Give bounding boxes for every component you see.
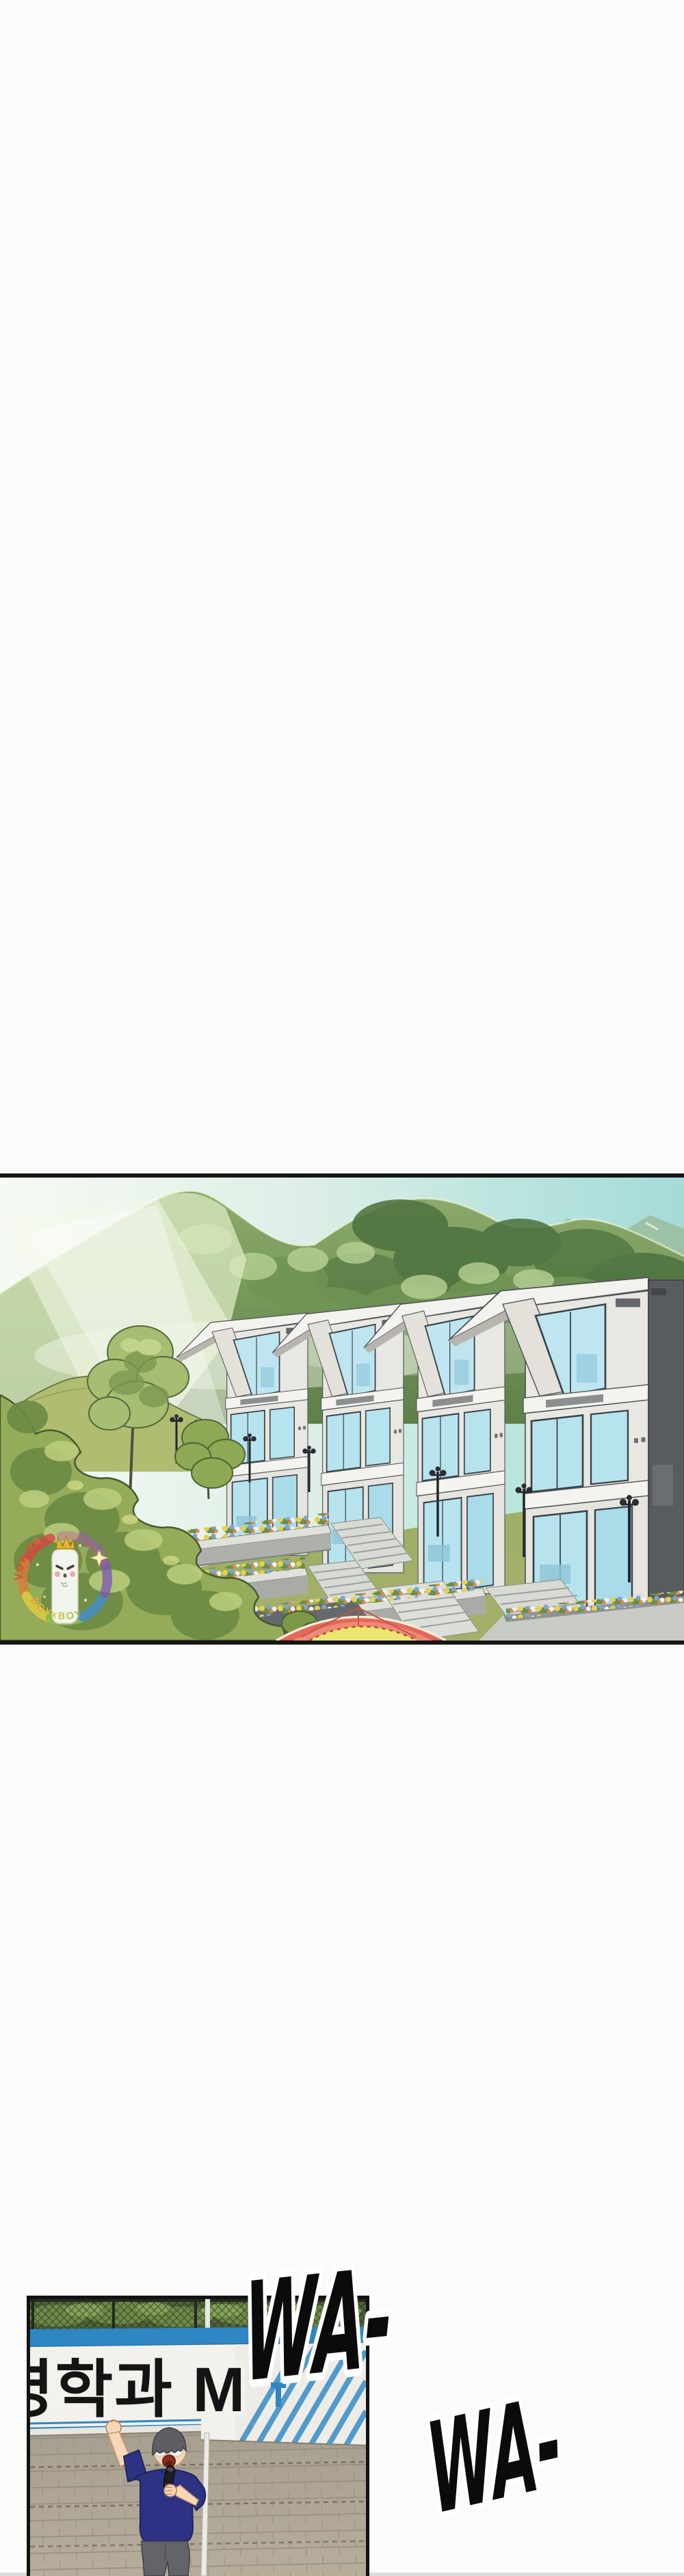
sfx-wa-first: WA- [229,2259,407,2406]
sfx-text: WA- [421,2368,569,2543]
webtoon-page: Vớn Vá TEAM BOYxBOY [0,0,684,2576]
banner-text: 영학과 M [30,2355,246,2425]
flag-pole-top [205,2299,210,2329]
sfx-text: WA- [244,2239,393,2413]
panel-landscape: Vớn Vá TEAM BOYxBOY [0,1173,684,1645]
landscape-scene: Vớn Vá TEAM BOYxBOY [0,1178,684,1641]
dark-building-slab [648,1280,684,1641]
sfx-wa-second: WA- [414,2391,578,2534]
